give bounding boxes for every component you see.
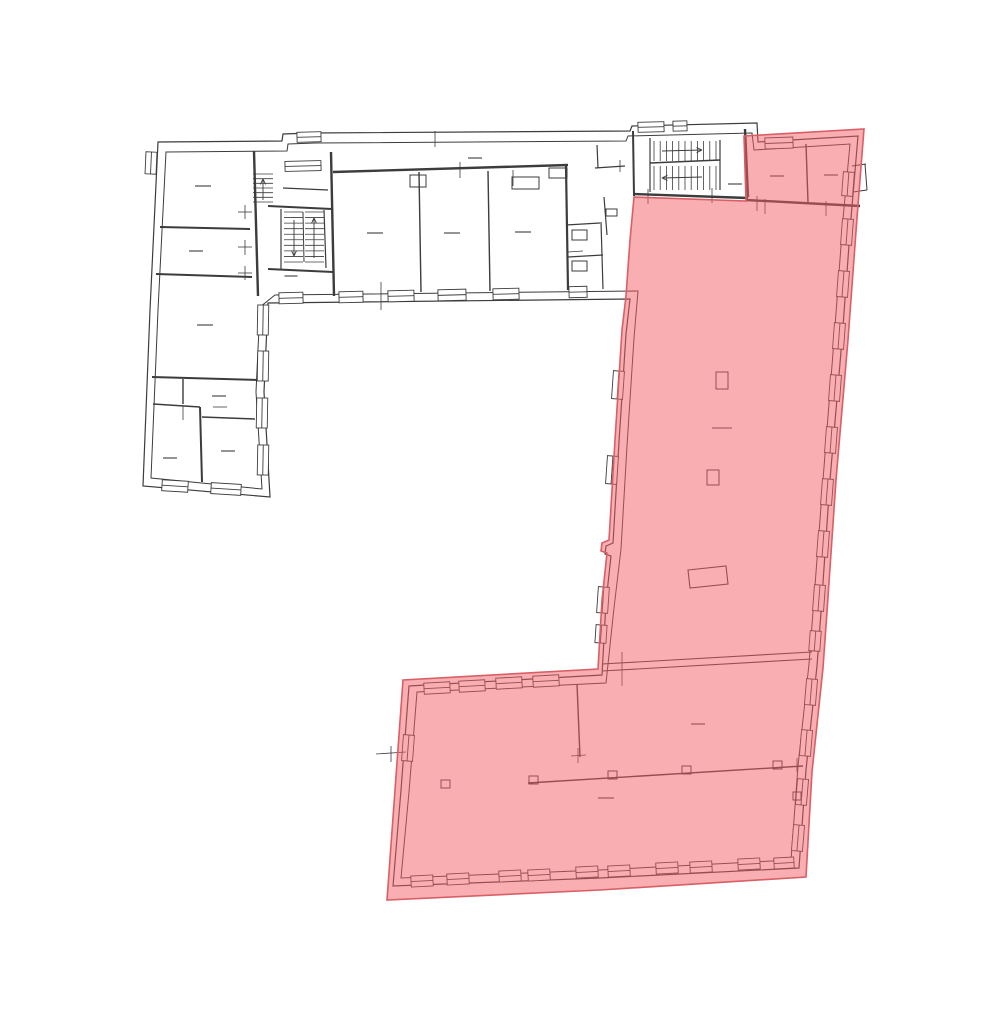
window-symbol xyxy=(145,152,157,174)
interior-wall xyxy=(865,164,867,190)
window-symbol xyxy=(257,445,269,475)
window-symbol xyxy=(438,289,466,301)
floorplan-svg xyxy=(0,0,1000,1027)
window-symbol xyxy=(162,480,189,493)
column-or-fixture xyxy=(572,261,587,271)
interior-wall xyxy=(333,165,568,172)
interior-wall xyxy=(566,223,600,225)
interior-wall xyxy=(303,212,304,262)
interior-wall xyxy=(566,166,568,290)
floorplan-page xyxy=(0,0,1000,1027)
interior-wall xyxy=(156,274,252,277)
stair-direction-arrow xyxy=(311,218,316,258)
interior-wall xyxy=(152,377,258,380)
interior-wall xyxy=(160,227,250,229)
column-or-fixture xyxy=(606,209,617,216)
stair-direction-arrow xyxy=(662,175,702,180)
window-symbol xyxy=(285,161,321,172)
column-or-fixture xyxy=(549,168,567,178)
tick-mark xyxy=(568,251,583,252)
interior-wall xyxy=(202,417,255,419)
interior-wall xyxy=(324,210,326,268)
window-symbol xyxy=(256,398,268,428)
window-symbol xyxy=(279,292,303,304)
window-symbol xyxy=(673,121,687,131)
window-symbol xyxy=(211,483,242,496)
column-or-fixture xyxy=(512,177,539,189)
interior-wall xyxy=(153,404,200,407)
interior-wall xyxy=(268,269,333,272)
window-symbol xyxy=(569,286,587,297)
interior-wall xyxy=(488,171,490,291)
window-symbol xyxy=(388,290,414,302)
interior-wall xyxy=(633,131,634,196)
window-symbol xyxy=(638,122,664,133)
interior-wall xyxy=(283,188,328,190)
interior-wall xyxy=(268,206,332,209)
window-symbol xyxy=(297,132,321,143)
highlighted-area[interactable] xyxy=(387,129,864,900)
highlighted-area-layer xyxy=(387,129,864,900)
interior-wall xyxy=(254,151,258,296)
interior-wall xyxy=(595,166,625,168)
interior-wall xyxy=(419,172,421,292)
window-symbol xyxy=(493,288,519,300)
window-symbol xyxy=(257,305,269,335)
interior-wall xyxy=(331,152,334,296)
interior-wall xyxy=(597,145,598,168)
stair-direction-arrow xyxy=(260,179,265,200)
interior-wall xyxy=(568,255,603,257)
interior-wall xyxy=(200,407,202,482)
column-or-fixture xyxy=(410,175,426,187)
window-symbol xyxy=(339,291,363,303)
column-or-fixture xyxy=(572,230,587,240)
stair-direction-arrow xyxy=(662,148,702,153)
window-symbol xyxy=(257,351,269,381)
